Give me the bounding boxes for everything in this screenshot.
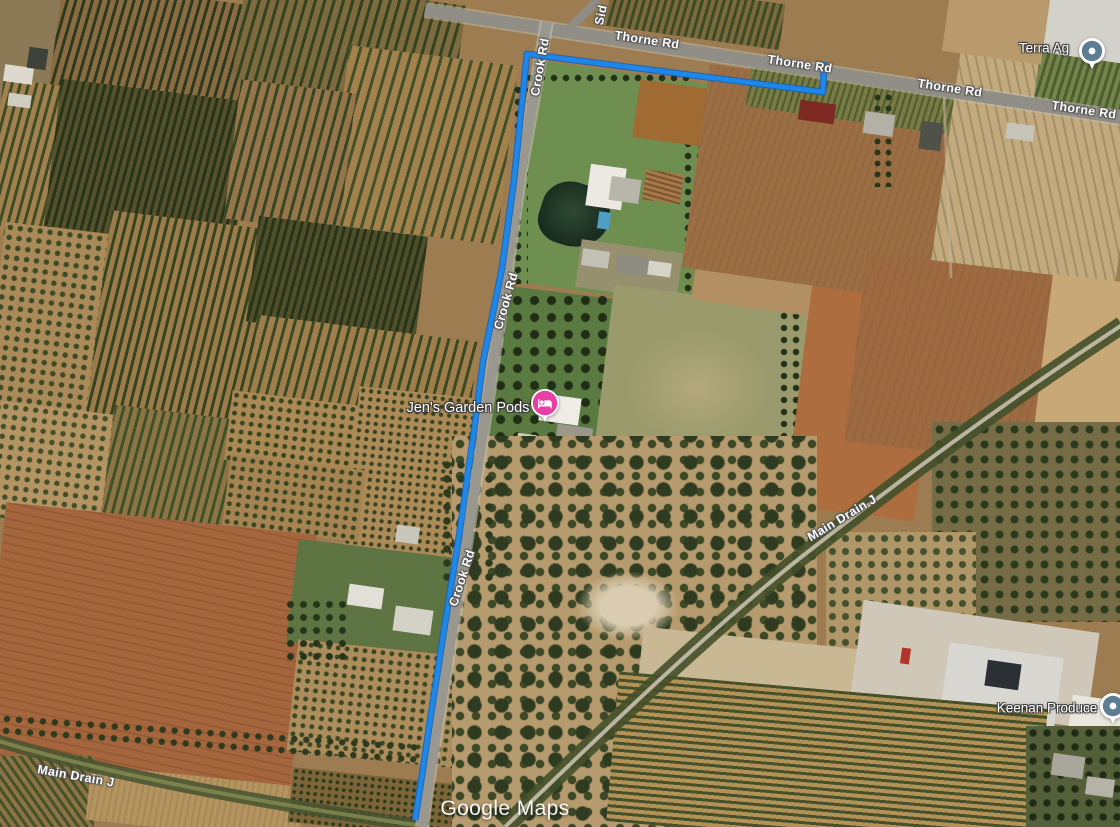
crook-rd-road: [422, 22, 547, 827]
roads-route-layer: [0, 0, 1120, 827]
satellite-map[interactable]: Thorne Rd Thorne Rd Thorne Rd Thorne Rd …: [0, 0, 1120, 827]
place-label-terra-ag[interactable]: Terra Ag: [1019, 41, 1069, 56]
main-drain-sw-vegetation: [0, 740, 430, 827]
main-drain-track: [505, 325, 1120, 827]
place-label-jens-garden-pods[interactable]: Jen's Garden Pods: [407, 400, 530, 416]
place-label-keenan-produce[interactable]: Keenan Produce: [997, 701, 1098, 716]
keenan-produce-pin[interactable]: [1100, 693, 1120, 726]
pin-dot: [1110, 703, 1117, 710]
pin-dot: [1089, 48, 1096, 55]
farm-track: [944, 94, 951, 278]
main-drain-vegetation: [505, 325, 1120, 827]
terra-ag-pin[interactable]: [1079, 38, 1105, 71]
google-maps-watermark: Google Maps: [440, 797, 569, 821]
jens-garden-pods-lodging-pin[interactable]: [531, 389, 559, 424]
